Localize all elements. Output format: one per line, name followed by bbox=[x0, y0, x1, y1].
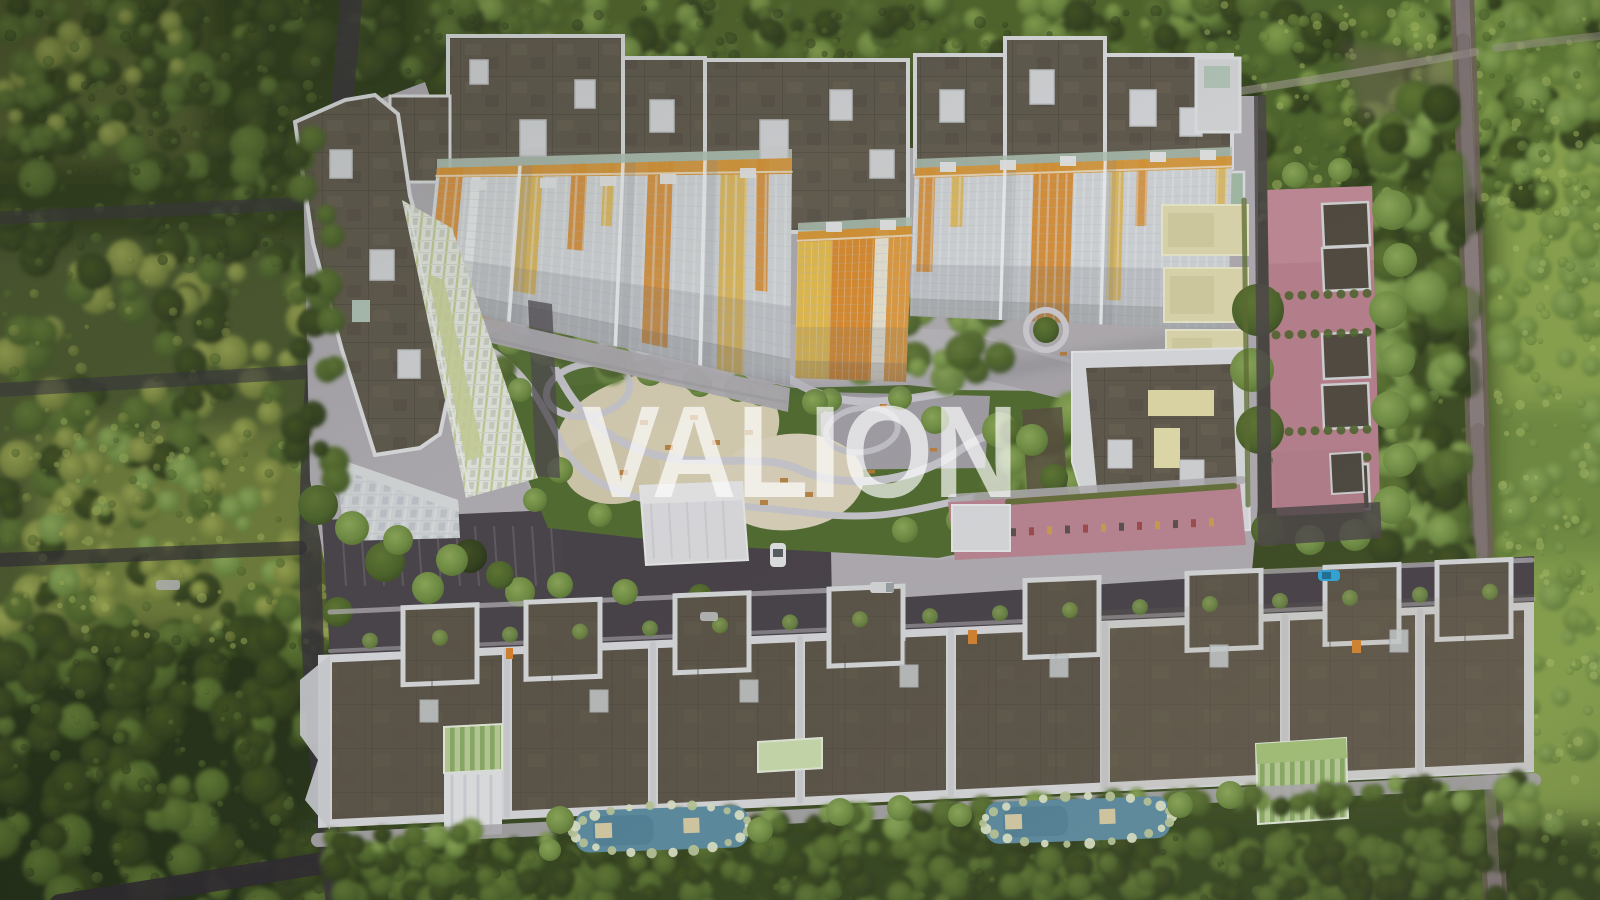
svg-text:VALION: VALION bbox=[582, 378, 1019, 525]
